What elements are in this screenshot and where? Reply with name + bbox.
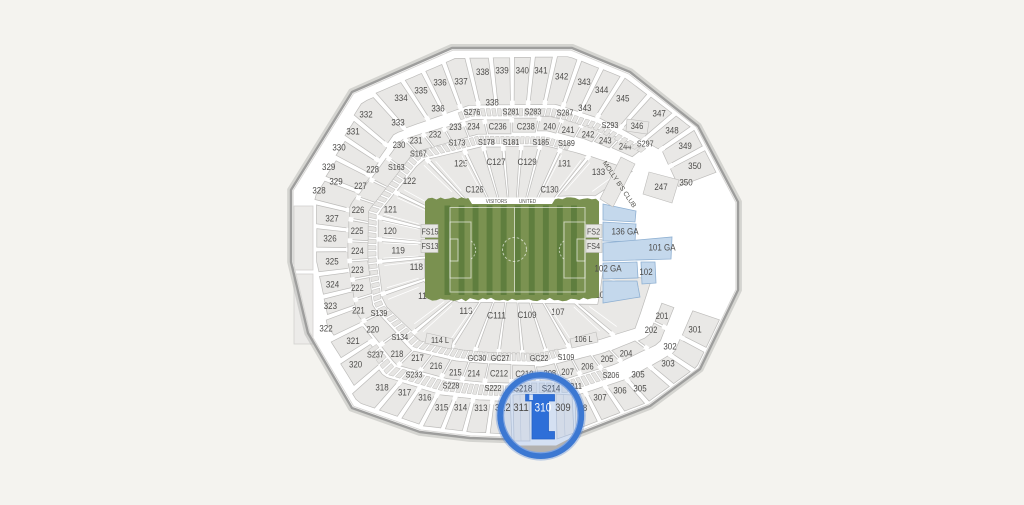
svg-text:FS15: FS15 [421,226,438,236]
svg-text:333: 333 [391,117,404,128]
svg-text:S134: S134 [391,332,408,342]
svg-text:336: 336 [433,77,446,88]
svg-text:202: 202 [645,325,658,335]
svg-text:326: 326 [323,233,336,244]
svg-text:329: 329 [322,162,335,173]
svg-text:331: 331 [346,126,359,137]
svg-text:136 GA: 136 GA [611,227,639,238]
svg-text:S222: S222 [485,383,502,393]
svg-text:VISITORS: VISITORS [486,199,508,205]
svg-text:324: 324 [326,279,339,290]
svg-text:S109: S109 [558,352,575,362]
svg-text:233: 233 [449,122,462,132]
svg-text:215: 215 [449,367,462,377]
svg-text:S293: S293 [602,120,619,130]
svg-text:218: 218 [391,349,404,359]
svg-text:S189: S189 [558,138,575,148]
svg-text:C109: C109 [517,310,536,321]
svg-text:327: 327 [325,213,338,224]
svg-text:120: 120 [383,226,396,237]
svg-text:225: 225 [351,226,364,236]
svg-text:121: 121 [384,205,397,216]
svg-text:343: 343 [578,103,591,114]
svg-text:S233: S233 [406,370,423,380]
svg-text:S276: S276 [464,107,481,117]
svg-text:335: 335 [414,85,427,96]
svg-text:S237: S237 [367,349,384,359]
svg-text:C127: C127 [486,157,505,168]
svg-text:230: 230 [393,140,406,150]
svg-text:FS13: FS13 [421,241,438,251]
svg-text:C126: C126 [466,184,484,194]
svg-text:313: 313 [474,403,487,414]
svg-text:350: 350 [679,177,692,188]
svg-text:322: 322 [319,324,332,335]
svg-text:S297: S297 [637,139,654,149]
svg-text:S163: S163 [388,162,405,172]
svg-text:328: 328 [312,185,325,196]
svg-text:S281: S281 [503,107,520,117]
svg-text:344: 344 [595,85,608,96]
svg-text:302: 302 [663,341,676,352]
svg-text:242: 242 [582,129,595,139]
svg-text:118: 118 [410,262,423,273]
svg-text:311: 311 [513,402,528,414]
svg-text:S228: S228 [443,380,460,390]
svg-text:330: 330 [332,143,345,154]
svg-text:316: 316 [418,392,431,403]
svg-text:101 GA: 101 GA [648,243,676,254]
svg-text:314: 314 [454,403,467,414]
svg-text:223: 223 [351,265,364,275]
svg-text:204: 204 [620,349,633,359]
svg-text:S283: S283 [525,107,542,117]
svg-text:133: 133 [592,167,605,178]
svg-text:345: 345 [616,93,629,104]
svg-text:S214: S214 [542,384,561,395]
svg-text:216: 216 [430,361,443,371]
svg-text:201: 201 [656,311,669,321]
svg-text:247: 247 [654,182,667,193]
svg-text:S185: S185 [533,137,550,147]
svg-text:347: 347 [653,109,666,120]
svg-text:S287: S287 [557,107,574,117]
svg-text:234: 234 [467,122,480,132]
svg-text:S206: S206 [603,370,620,380]
svg-text:320: 320 [349,360,362,371]
svg-text:125: 125 [454,158,467,169]
svg-text:221: 221 [352,306,365,316]
svg-text:343: 343 [577,77,590,88]
svg-text:309: 309 [555,402,570,414]
svg-text:341: 341 [534,66,547,77]
svg-text:340: 340 [516,65,529,76]
svg-text:350: 350 [688,161,701,172]
svg-text:231: 231 [410,136,423,146]
svg-text:FS2: FS2 [587,226,600,236]
svg-text:220: 220 [367,324,380,334]
svg-text:226: 226 [352,205,365,215]
svg-text:303: 303 [661,358,674,369]
svg-text:317: 317 [398,387,411,398]
svg-text:329: 329 [329,176,342,187]
svg-text:321: 321 [346,336,359,347]
svg-text:GC27: GC27 [491,353,510,363]
svg-text:305: 305 [631,369,644,380]
svg-text:318: 318 [375,382,388,393]
svg-text:306: 306 [613,385,626,396]
svg-text:325: 325 [325,256,338,267]
svg-text:310: 310 [535,401,552,415]
svg-text:GC22: GC22 [530,353,549,363]
svg-text:337: 337 [454,76,467,87]
svg-text:342: 342 [555,72,568,83]
svg-text:240: 240 [543,121,556,131]
svg-text:102: 102 [639,267,652,278]
svg-text:315: 315 [435,403,448,414]
svg-text:205: 205 [601,354,614,364]
svg-text:241: 241 [562,125,575,135]
svg-text:C236: C236 [489,122,507,132]
svg-text:S167: S167 [410,149,427,159]
svg-text:FS4: FS4 [587,241,600,251]
svg-text:GC30: GC30 [468,353,487,363]
svg-text:346: 346 [631,121,644,131]
svg-text:106 L: 106 L [575,334,593,344]
svg-text:336: 336 [431,103,444,114]
svg-text:332: 332 [359,110,372,121]
svg-text:307: 307 [593,392,606,403]
svg-text:C130: C130 [540,184,558,194]
svg-text:323: 323 [324,301,337,312]
svg-text:227: 227 [354,181,367,191]
svg-text:C129: C129 [518,157,537,168]
svg-text:334: 334 [394,93,407,104]
svg-text:228: 228 [366,165,379,175]
svg-text:207: 207 [561,367,574,377]
svg-text:C111: C111 [487,311,506,322]
svg-text:338: 338 [476,67,489,78]
svg-text:119: 119 [392,245,405,256]
svg-text:S178: S178 [478,137,495,147]
svg-text:UNITED: UNITED [519,199,536,205]
svg-text:338: 338 [486,97,499,108]
svg-text:222: 222 [351,283,364,293]
svg-text:S173: S173 [449,138,466,148]
svg-text:S181: S181 [503,137,520,147]
svg-text:224: 224 [351,246,364,256]
svg-text:232: 232 [429,130,442,140]
svg-text:206: 206 [581,361,594,371]
svg-text:C212: C212 [490,368,508,378]
svg-text:114 L: 114 L [431,335,449,345]
svg-text:301: 301 [688,324,701,335]
svg-text:217: 217 [411,353,424,363]
svg-text:349: 349 [679,141,692,152]
svg-text:348: 348 [665,125,678,136]
svg-text:305: 305 [633,383,646,394]
svg-text:339: 339 [495,66,508,77]
svg-text:102 GA: 102 GA [594,264,622,275]
svg-text:C238: C238 [517,121,535,131]
svg-text:S139: S139 [371,308,388,318]
svg-text:214: 214 [468,369,481,379]
